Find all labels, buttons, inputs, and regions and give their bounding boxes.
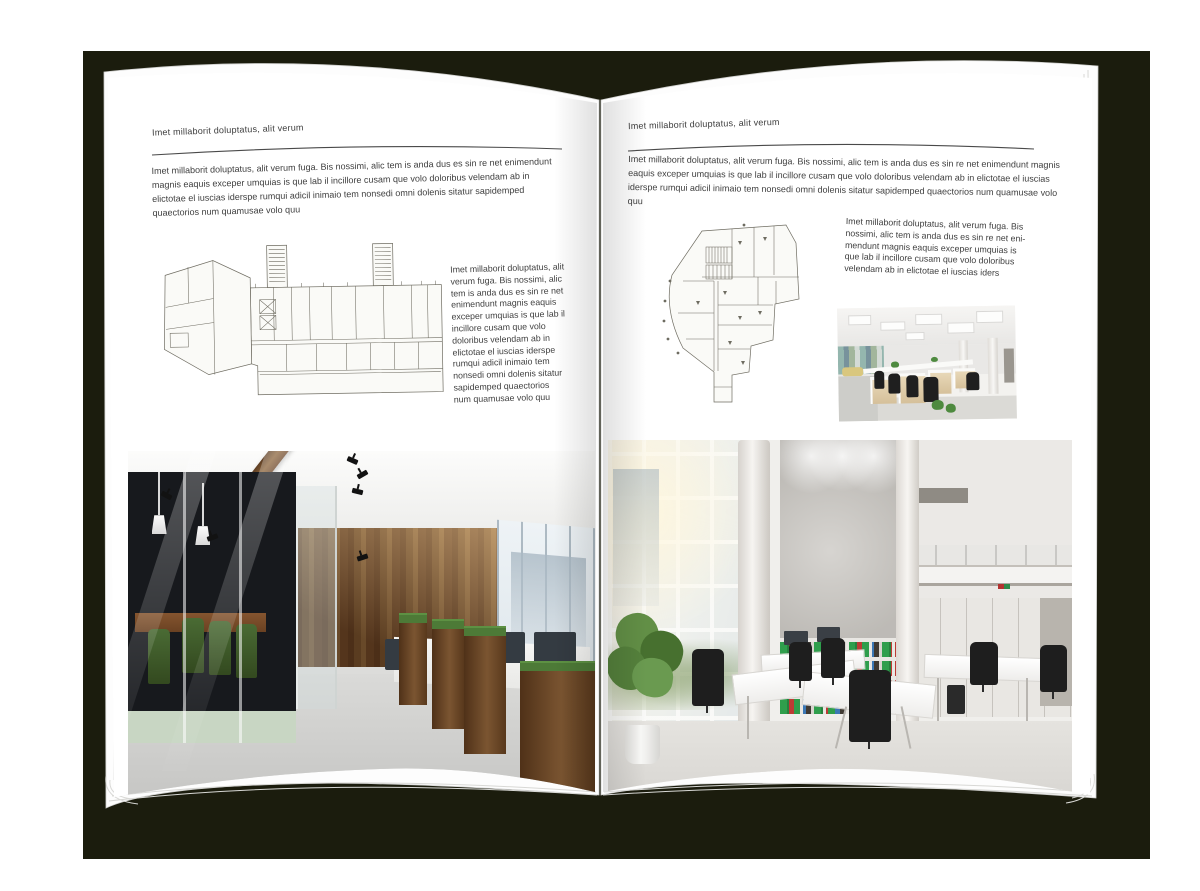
light-panel: [880, 321, 905, 331]
small-office-photo: [837, 305, 1017, 421]
right-page: Imet millaborit doluptatus, alit verum I…: [600, 55, 1100, 807]
meeting-room-floor: [128, 711, 296, 744]
office-chair: [874, 371, 885, 389]
office-chair: [888, 373, 901, 394]
mezzanine: [905, 440, 1072, 598]
floor-plan-left: [155, 240, 450, 409]
lounge-sofa: [842, 367, 864, 376]
pendant-lamp: [152, 515, 167, 534]
light-panel: [948, 322, 975, 333]
glass-joint: [239, 472, 242, 743]
office-chair: [1040, 645, 1068, 692]
office-chair: [970, 642, 998, 685]
light-panel: [905, 332, 925, 340]
office-chair: [906, 375, 919, 398]
office-chair: [966, 372, 979, 390]
right-side-paragraph: Imet millaborit doluptatus, alit verum f…: [844, 216, 1034, 281]
desk-leg: [1026, 678, 1028, 721]
plant: [930, 357, 937, 363]
column: [987, 337, 999, 394]
concrete-feature-wall: [780, 440, 905, 642]
office-chair: [692, 649, 724, 707]
office-chair: [821, 638, 844, 678]
left-intro-paragraph: Imet millaborit doluptatus, alit verum f…: [151, 154, 564, 220]
right-office-photo: [608, 440, 1072, 800]
glass-partition: [296, 486, 337, 709]
wood-planter: [399, 622, 427, 706]
glass-joint: [183, 472, 186, 743]
right-page-header: Imet millaborit doluptatus, alit verum: [628, 117, 780, 131]
far-door: [1003, 348, 1014, 382]
spine-shadow: [554, 55, 600, 807]
left-side-paragraph: Imet millaborit doluptatus, alit verum f…: [450, 261, 568, 406]
left-page: Imet millaborit doluptatus, alit verum I…: [100, 55, 600, 807]
desk-leg: [937, 678, 939, 721]
plant: [946, 404, 957, 413]
office-chair: [849, 670, 891, 742]
desk-leg: [747, 696, 749, 739]
glass-meeting-room: [128, 472, 296, 743]
left-office-photo: [128, 451, 595, 799]
light-panel: [848, 315, 872, 325]
left-page-header: Imet millaborit doluptatus, alit verum: [152, 122, 304, 137]
office-chair: [924, 377, 939, 402]
light-panel: [976, 310, 1003, 323]
balcony-slab: [905, 565, 1072, 586]
right-intro-paragraph: Imet millaborit doluptatus, alit verum f…: [628, 152, 1063, 214]
waste-bin: [947, 685, 966, 714]
exit-signs: [998, 584, 1010, 589]
vent-slot: [918, 488, 968, 504]
spine-shadow: [600, 55, 646, 807]
wood-planter: [432, 628, 465, 729]
plant: [891, 362, 898, 368]
magazine-mockup: Imet millaborit doluptatus, alit verum I…: [0, 0, 1200, 891]
office-chair: [789, 642, 812, 682]
wood-planter: [464, 635, 506, 753]
floor-plan-right: [648, 221, 810, 415]
plant: [931, 399, 944, 409]
light-panel: [915, 313, 942, 324]
